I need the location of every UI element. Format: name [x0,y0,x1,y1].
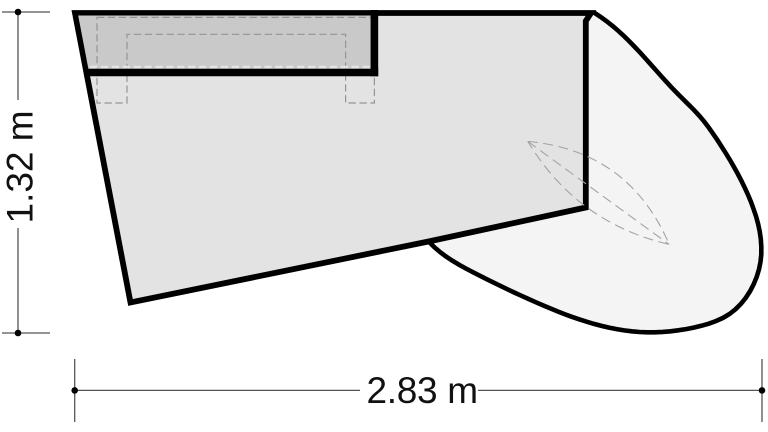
svg-text:2.83 m: 2.83 m [367,370,478,411]
svg-text:1.32 m: 1.32 m [0,110,41,223]
